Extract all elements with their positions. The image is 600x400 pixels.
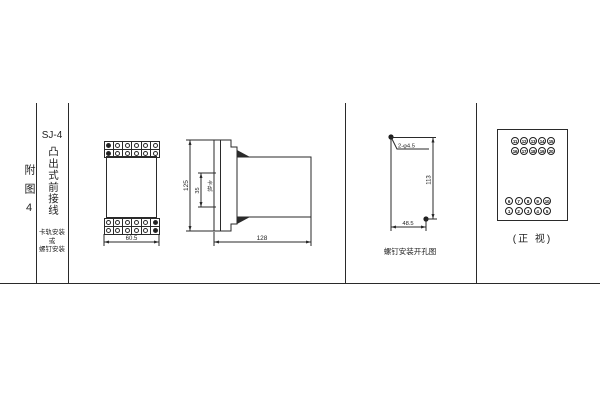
hole-callout: 2-φ4.5 (392, 139, 429, 150)
screw-icon (143, 143, 148, 148)
screw-icon (153, 228, 158, 233)
screw-icon (106, 220, 111, 225)
front-view-terminal-block-top (104, 141, 160, 157)
depth-dim-text: 128 (257, 235, 268, 242)
terminal-16: 16 (511, 147, 519, 155)
screw-icon (143, 220, 148, 225)
front-view-width-dimension: 60.5 (100, 234, 164, 248)
screw-icon (115, 151, 120, 156)
terminal-9: 9 (534, 197, 542, 205)
screw-icon (143, 151, 148, 156)
screw-icon (134, 151, 139, 156)
terminal-20: 20 (547, 147, 555, 155)
drawing-sheet: 附图4 SJ-4 凸出式前接线 卡轨安装 或 螺钉安装 60.5 125 (0, 0, 600, 400)
terminal-19: 19 (538, 147, 546, 155)
terminal-1: 1 (505, 207, 513, 215)
terminal-14: 14 (538, 137, 546, 145)
terminal-4: 4 (534, 207, 542, 215)
screw-icon (153, 143, 158, 148)
terminal-15: 15 (547, 137, 555, 145)
terminal-10: 10 (543, 197, 551, 205)
terminal-7: 7 (515, 197, 523, 205)
mounting-vertical-dimension: 113 (427, 138, 435, 220)
terminal-17: 17 (520, 147, 528, 155)
mounting-vertical-dim-text: 113 (427, 175, 433, 185)
screw-icon (134, 143, 139, 148)
frame-vline-2 (68, 103, 69, 283)
screw-icon (134, 220, 139, 225)
terminal-layout-caption: (正 视) (497, 230, 568, 245)
terminal-8: 8 (524, 197, 532, 205)
hole-callout-text: 2-φ4.5 (398, 144, 415, 150)
section-divider-1 (345, 103, 346, 283)
screw-icon (125, 151, 130, 156)
terminal-5: 5 (543, 207, 551, 215)
terminal-2: 2 (515, 207, 523, 215)
screw-icon (153, 220, 158, 225)
terminal-12: 12 (520, 137, 528, 145)
figure-label: 附图4 (21, 164, 37, 222)
screw-icon (115, 143, 120, 148)
mounting-diagram-caption: 螺钉安装开孔图 (370, 246, 450, 257)
model-label: SJ-4 (36, 130, 68, 141)
mounting-hole-diagram: 2-φ4.5 113 48.5 (370, 128, 450, 240)
screw-icon (143, 228, 148, 233)
terminal-13: 13 (529, 137, 537, 145)
screw-icon (106, 143, 111, 148)
screw-icon (115, 220, 120, 225)
terminal-grid: 1112131415161718192067891012345 (497, 129, 568, 221)
terminal-18: 18 (529, 147, 537, 155)
mount-note: 卡轨安装 或 螺钉安装 (35, 229, 69, 255)
mounting-horizontal-dimension: 48.5 (391, 221, 426, 229)
side-height-dim-text: 125 (183, 180, 190, 191)
screw-icon (125, 220, 130, 225)
terminal-3: 3 (524, 207, 532, 215)
side-view: 125 35 128 (180, 130, 320, 250)
rail-label: 卡轨 (205, 180, 213, 192)
screw-icon (125, 143, 130, 148)
front-width-dim-text: 60.5 (126, 236, 138, 242)
frame-bottom-rule (0, 283, 600, 284)
screw-icon (125, 228, 130, 233)
mount-note-line3: 螺钉安装 (35, 246, 69, 255)
section-divider-2 (476, 103, 477, 283)
rail-dim-text: 35 (195, 187, 201, 193)
front-view-terminal-block-bottom (104, 218, 160, 234)
side-view-outline (214, 140, 311, 231)
terminal-11: 11 (511, 137, 519, 145)
front-view-body (106, 156, 157, 218)
screw-icon (106, 151, 111, 156)
screw-icon (106, 228, 111, 233)
screw-icon (134, 228, 139, 233)
terminal-6: 6 (505, 197, 513, 205)
wiring-type-title: 凸出式前接线 (46, 146, 61, 216)
mounting-horizontal-dim-text: 48.5 (402, 221, 413, 227)
mount-note-line1: 卡轨安装 (35, 229, 69, 238)
screw-icon (115, 228, 120, 233)
mount-note-line2: 或 (35, 238, 69, 247)
screw-icon (153, 151, 158, 156)
